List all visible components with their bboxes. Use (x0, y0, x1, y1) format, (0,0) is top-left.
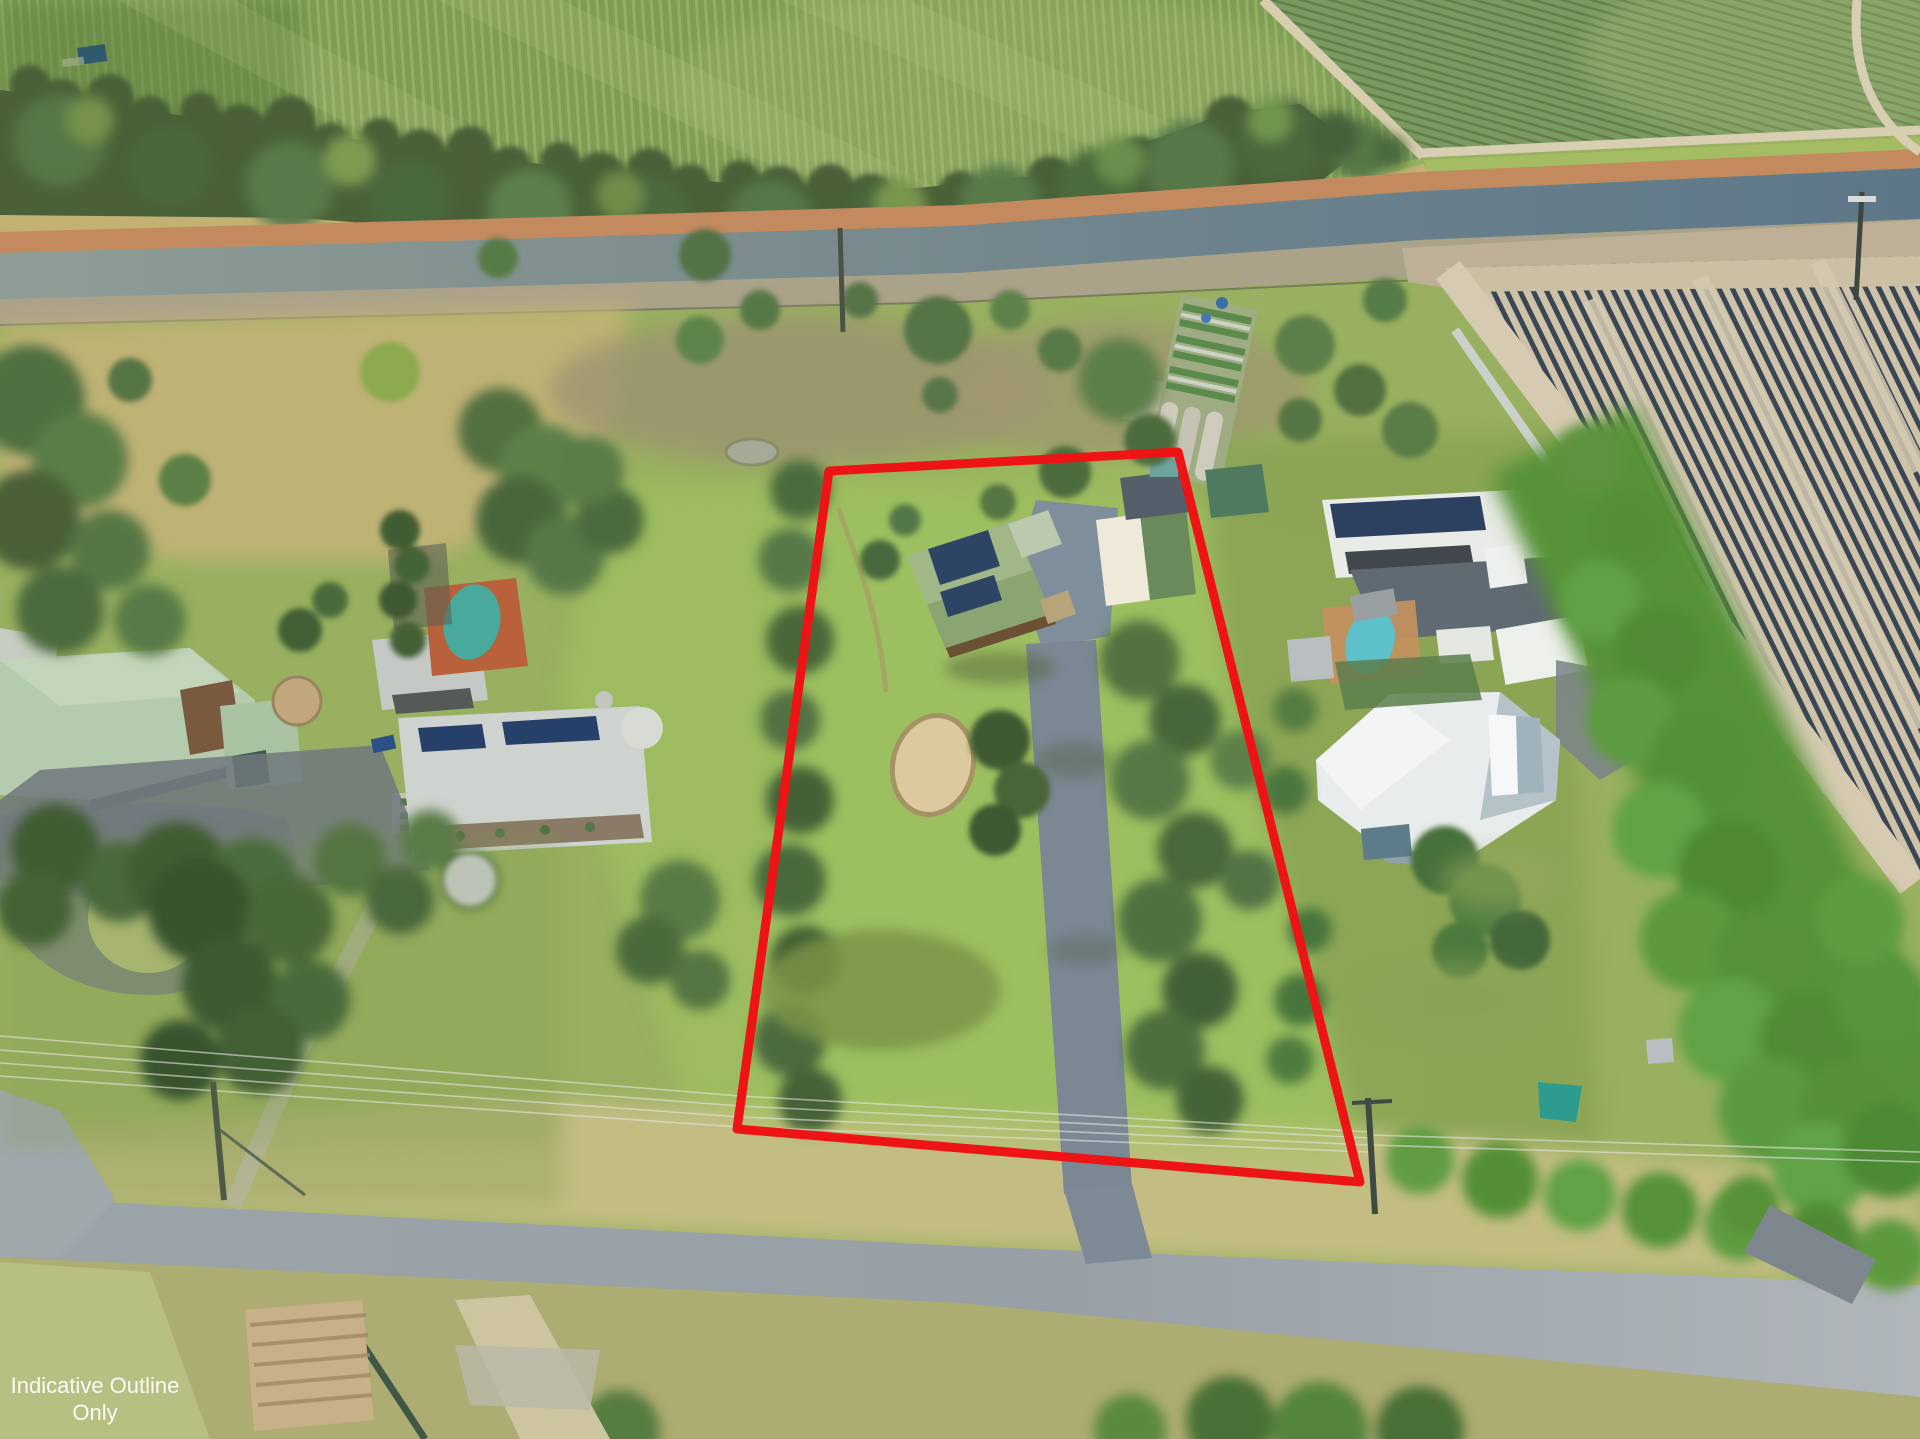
svg-text:Only: Only (72, 1400, 117, 1425)
svg-text:Indicative Outline: Indicative Outline (11, 1373, 180, 1398)
